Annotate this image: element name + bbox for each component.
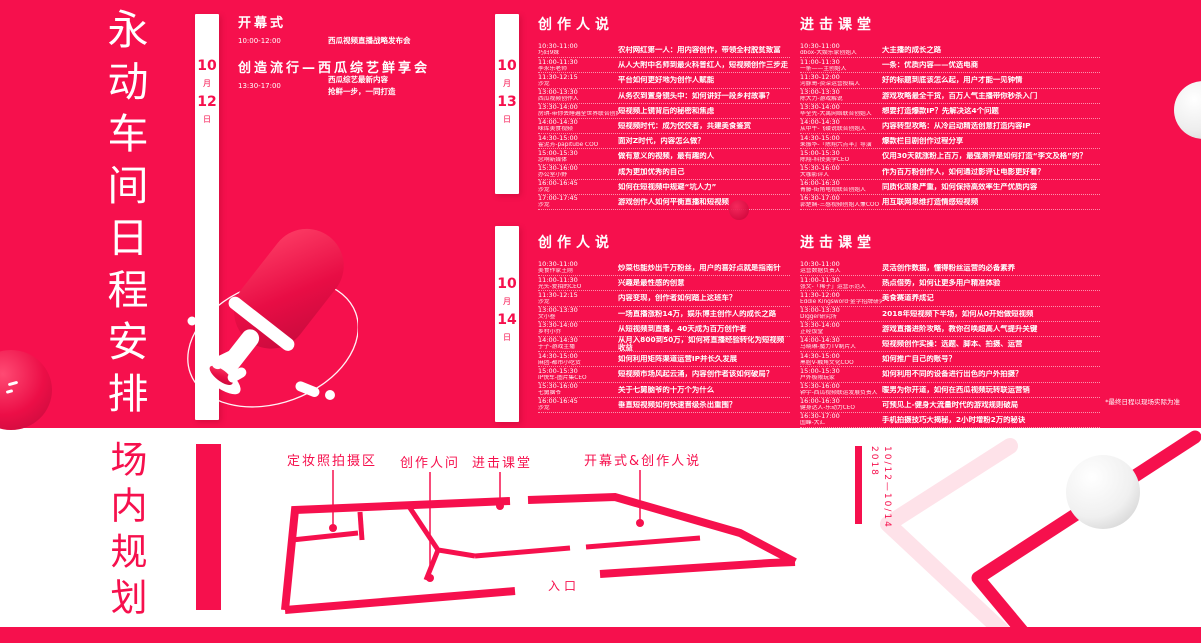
session-topic: 游戏创作人如何平衡直播和短视频 [618, 198, 790, 206]
red-divider-bar [196, 444, 221, 610]
session-topic: 做有意义的视频，最有趣的人 [618, 152, 790, 160]
session-time: 13:00-13:30 [538, 89, 618, 96]
session-time: 15:00-15:30 [800, 150, 882, 157]
session-topic: 短视频市场风起云涌，内容创作者该如何破局？ [618, 370, 790, 378]
session-row: 15:00-15:30 陈翔-科技美学CEO 仅用30天就涨粉上百万，最强测评是… [800, 149, 1100, 164]
session-speaker: 李永乐老师 [538, 66, 618, 72]
oct13-creators-column: 创作人说 10:30-11:00 巧妇9妹 农村网红第一人：用内容创作，带领全村… [538, 14, 790, 210]
session-list: 10:30-11:00 巧妇9妹 农村网红第一人：用内容创作，带领全村脱贫致富 … [538, 43, 790, 210]
session-topic: 内容转型攻略：从冷启动精选创意打造内容IP [882, 122, 1100, 130]
session-time: 14:30-15:00 [800, 135, 882, 142]
session-time: 14:00-14:30 [538, 337, 618, 344]
session-row: 16:30-17:00 郭楚娴-三感视频创始人兼COO 用互联网思维打造情感短视… [800, 195, 1100, 210]
plan-label-opening-area: 开幕式&创作人说 [584, 450, 701, 469]
session-speaker: 西瓜视频创作人 [538, 96, 618, 102]
session-speaker: 一条——主创始人 [800, 66, 882, 72]
session-row: 13:00-13:30 Digger研究所 2018年短视频下半场，如何从0开始… [800, 307, 1100, 322]
session-time: 15:30-16:00 [800, 165, 882, 172]
session-row: 16:00-16:45 沙龙 如何在短视频中规避“坑人力” [538, 180, 790, 195]
session-speaker: 健身达人-乐动力CEO [800, 405, 882, 411]
column-header: 创作人说 [538, 232, 790, 252]
session-time: 11:00-11:30 [538, 59, 618, 66]
session-row: 10:30-11:00 dbox-大娱乐家创始人 大主播的成长之路 [800, 43, 1100, 58]
session-row: 11:30-12:00 河豚哥-资深运营投稿人 好的标题到底该怎么起，用户才能一… [800, 73, 1100, 88]
session-topic: 关于七舅脑爷的十万个为什么 [618, 386, 790, 394]
session-topic: 大主播的成长之路 [882, 46, 1100, 54]
session-speaker: 沙龙 [538, 202, 618, 208]
ball-highlight [6, 389, 14, 394]
session-topic: 从人大附中名师到最火科普红人，短视频创作三步走 [618, 61, 790, 69]
session-time: 16:00-16:45 [538, 180, 618, 187]
session-row: 11:30-12:15 沙龙 内容变现，创作者如何踏上这班车？ [538, 291, 790, 306]
session-row: 14:00-14:30 味库美食视频 短视频时代：成为佼佼者，共建美食鉴赏 [538, 119, 790, 134]
session-speaker: 沙龙 [538, 187, 618, 193]
date-day-label: 日 [503, 115, 511, 125]
session-row: 15:30-16:00 办公室小野 成为更加优秀的自己 [538, 165, 790, 180]
date-month-label: 月 [503, 79, 511, 89]
date-bar-oct13: 10 月 13 日 [495, 14, 519, 194]
session-topic: 作为百万粉创作人，如何通过影评让电影更好看？ [882, 168, 1100, 176]
session-time: 13:30-14:00 [800, 322, 882, 329]
session-row: 15:30-16:00 七舅脑爷 关于七舅脑爷的十万个为什么 [538, 383, 790, 398]
session-speaker: 户外极限玩家 [800, 375, 882, 381]
variety-desc-line1: 西瓜综艺最新内容 [328, 74, 388, 85]
session-topic: 好的标题到底该怎么起，用户才能一见钟情 [882, 76, 1100, 84]
date-month: 10 [497, 58, 516, 74]
session-row: 13:30-14:00 毕全先-大禹网络联合创始人 想要打造爆款IP？先解决这4… [800, 104, 1100, 119]
date-day: 12 [197, 94, 216, 110]
oct14-creators-column: 创作人说 10:30-11:00 美食作家王刚 炒菜也能炒出千万粉丝，用户的喜好… [538, 232, 790, 413]
session-time: 14:30-15:00 [538, 135, 618, 142]
session-row: 13:00-13:30 西瓜视频创作人 从务农到置身镜头中：如何讲好一段乡村故事… [538, 89, 790, 104]
red-ball-decoration-middle [729, 200, 749, 220]
session-topic: 想要打造爆款IP？先解决这4个问题 [882, 107, 1100, 115]
session-topic: 从月入800到50万，如何将直播经验转化为短视频收益 [618, 336, 790, 352]
session-speaker: 钟宇-西瓜视频联运发展负责人 [800, 390, 882, 396]
opening-desc: 西瓜视频直播战略发布会 [328, 35, 411, 46]
session-topic: 炒菜也能炒出千万粉丝，用户的喜好点就是指南针 [618, 264, 790, 272]
session-topic: 短视频时代：成为佼佼者，共建美食鉴赏 [618, 122, 790, 130]
session-speaker: 于子-游戏主播 [538, 344, 618, 350]
date-day-label: 日 [503, 333, 511, 343]
session-speaker: 郭楚娴-三感视频创始人兼COO [800, 202, 882, 208]
session-row: 13:30-14:00 房琪-带你去睡遍全世界联合创始人 短视频上镜背后的秘密和… [538, 104, 790, 119]
session-time: 16:00-16:45 [538, 398, 618, 405]
session-row: 10:30-11:00 美食作家王刚 炒菜也能炒出千万粉丝，用户的喜好点就是指南… [538, 261, 790, 276]
footnote: *最终日程以现场实际为准 [1050, 396, 1180, 406]
session-row: 13:00-13:30 陈大力-游戏解说 游戏攻略最全干货，百万人气主播带你秒杀… [800, 89, 1100, 104]
column-header: 进击课堂 [800, 14, 1100, 34]
floor-plan [270, 440, 870, 635]
session-time: 15:30-16:00 [538, 383, 618, 390]
session-topic: 一条：优质内容——优选电商 [882, 61, 1100, 69]
session-topic: 爆款栏目剧创作过程分享 [882, 137, 1100, 145]
session-speaker: 大咖影评人 [800, 172, 882, 178]
poster-title: 永动车间日程安排 [94, 8, 154, 428]
session-row: 15:00-15:30 念响新媒体 做有意义的视频，最有趣的人 [538, 149, 790, 164]
session-time: 13:00-13:30 [800, 89, 882, 96]
session-time: 13:30-14:00 [538, 322, 618, 329]
session-time: 11:00-11:30 [800, 59, 882, 66]
session-topic: 垂直短视频如何快速晋级杀出重围？ [618, 401, 790, 409]
session-speaker: 马晓琳-魔力TV制片人 [800, 344, 882, 350]
session-time: 11:30-12:00 [800, 292, 882, 299]
session-row: 15:00-15:30 户外极限玩家 如何利用不同的设备进行出色的户外拍摄？ [800, 367, 1100, 382]
session-speaker: 办公室小野 [538, 172, 618, 178]
session-time: 11:30-12:00 [800, 74, 882, 81]
session-topic: 仅用30天就涨粉上百万，最强测评是如何打造“李文及格”的？ [882, 152, 1100, 160]
venue-title: 场内规划 [98, 440, 152, 635]
session-speaker: 运营数据负责人 [800, 268, 882, 274]
session-speaker: 张文-「稀子」运营示范人 [800, 284, 882, 290]
variety-desc-line2: 抢鲜一步，一同打造 [328, 86, 396, 97]
session-time: 14:00-14:30 [800, 337, 882, 344]
session-speaker: 国峰-大汇 [800, 420, 882, 426]
session-row: 14:30-15:00 麻团-都市小吃货 如何利用矩阵渠道运营IP并长久发展 [538, 352, 790, 367]
session-speaker: 文小叁 [538, 314, 618, 320]
session-time: 13:30-14:00 [800, 104, 882, 111]
session-row: 13:30-14:00 乡村小乔 从短视频到直播，40天成为百万创作者 [538, 322, 790, 337]
session-topic: 用互联网思维打造情感短视频 [882, 198, 1100, 206]
session-topic: 2018年短视频下半场，如何从0开始做短视频 [882, 310, 1100, 318]
session-speaker: 七舅脑爷 [538, 390, 618, 396]
session-speaker: 沙龙 [538, 299, 618, 305]
session-speaker: 乡村小乔 [538, 329, 618, 335]
session-time: 14:30-15:00 [800, 353, 882, 360]
session-topic: 一场直播涨粉14万，娱乐博主创作人的成长之路 [618, 310, 790, 318]
session-time: 13:30-14:00 [538, 104, 618, 111]
session-speaker: 麻团-都市小吃货 [538, 360, 618, 366]
session-time: 16:30-17:00 [800, 413, 882, 420]
session-speaker: Eddie Kingsword·金字招牌研究室 [800, 299, 882, 305]
event-schedule-poster: 永动车间日程安排 10 月 12 日 开幕式 10:00-12:00 西瓜视频直… [0, 0, 1201, 643]
session-time: 15:30-16:00 [538, 165, 618, 172]
session-speaker: 霍泥芳-papitube COO [538, 142, 618, 148]
ball-highlight [8, 381, 18, 386]
session-speaker: 沙龙 [538, 81, 618, 87]
session-time: 10:30-11:00 [800, 261, 882, 268]
session-row: 11:30-12:15 沙龙 平台如何更好地为创作人赋能 [538, 73, 790, 88]
session-speaker: 光头-爱拍的CEO [538, 284, 618, 290]
session-time: 15:00-15:30 [538, 368, 618, 375]
session-time: 16:00-16:30 [800, 398, 882, 405]
session-row: 13:30-14:00 正经饭堂 游戏直播进阶攻略，教你召唤超高人气提升关键 [800, 322, 1100, 337]
microphone-3d-icon [183, 218, 358, 430]
session-topic: 面对Z时代，内容怎么做？ [618, 137, 790, 145]
session-speaker: dbox-大娱乐家创始人 [800, 50, 882, 56]
session-row: 11:00-11:30 一条——主创始人 一条：优质内容——优选电商 [800, 58, 1100, 73]
date-month-label: 月 [503, 297, 511, 307]
session-speaker: Digger研究所 [800, 314, 882, 320]
session-speaker: 房琪-带你去睡遍全世界联合创始人 [538, 111, 618, 117]
session-speaker: 毕全先-大禹网络联合创始人 [800, 111, 882, 117]
session-speaker: 陈翔-科技美学CEO [800, 157, 882, 163]
date-month: 10 [197, 58, 216, 74]
session-time: 11:30-12:15 [538, 292, 618, 299]
session-speaker: 美食作家王刚 [538, 268, 618, 274]
session-time: 14:00-14:30 [538, 119, 618, 126]
session-row: 14:00-14:30 从中午-飞碟说联合创始人 内容转型攻略：从冷启动精选创意… [800, 119, 1100, 134]
session-row: 16:30-17:00 国峰-大汇 手机拍摄技巧大揭秘，2小时增粉2万的秘诀 [800, 413, 1100, 428]
session-topic: 如何利用矩阵渠道运营IP并长久发展 [618, 355, 790, 363]
session-row: 16:00-16:30 青藤-街角电视联合创始人 同质化现象严重，如何保持高效率… [800, 180, 1100, 195]
session-topic: 暖男为你开道，如何在西瓜视频玩转联运营销 [882, 386, 1100, 394]
session-time: 13:00-13:30 [800, 307, 882, 314]
session-speaker: 念响新媒体 [538, 157, 618, 163]
session-topic: 平台如何更好地为创作人赋能 [618, 76, 790, 84]
session-topic: 灵活创作数据，懂得粉丝运营的必备素养 [882, 264, 1100, 272]
session-row: 10:30-11:00 运营数据负责人 灵活创作数据，懂得粉丝运营的必备素养 [800, 261, 1100, 276]
date-day: 14 [497, 312, 516, 328]
session-time: 13:00-13:30 [538, 307, 618, 314]
session-topic: 兴趣是最性感的创意 [618, 279, 790, 287]
session-topic: 同质化现象严重，如何保持高效率生产优质内容 [882, 183, 1100, 191]
date-bar-oct14: 10 月 14 日 [495, 226, 519, 422]
session-speaker: 黑脸V-触角文化COO [800, 360, 882, 366]
session-topic: 如何推广自己的账号？ [882, 355, 1100, 363]
session-topic: 短视频创作实操：选题、脚本、拍摄、运营 [882, 340, 1100, 348]
session-row: 14:00-14:30 于子-游戏主播 从月入800到50万，如何将直播经验转化… [538, 337, 790, 352]
session-row: 11:00-11:30 张文-「稀子」运营示范人 热点借势，如何让更多用户精准体… [800, 276, 1100, 291]
session-time: 11:30-12:15 [538, 74, 618, 81]
session-topic: 短视频上镜背后的秘密和焦虑 [618, 107, 790, 115]
session-topic: 农村网红第一人：用内容创作，带领全村脱贫致富 [618, 46, 790, 54]
track-and-ball-decoration [850, 430, 1201, 643]
session-time: 10:30-11:00 [538, 261, 618, 268]
entrance-label: 入口 [548, 577, 580, 594]
session-topic: 热点借势，如何让更多用户精准体验 [882, 279, 1100, 287]
session-time: 11:00-11:30 [538, 277, 618, 284]
plan-label-creator-ask: 创作人问 [400, 452, 460, 471]
session-topic: 游戏攻略最全干货，百万人气主播带你秒杀入门 [882, 92, 1100, 100]
session-speaker: IP快车-图片集CEO [538, 375, 618, 381]
column-header: 创作人说 [538, 14, 790, 34]
session-speaker: 河豚哥-资深运营投稿人 [800, 81, 882, 87]
session-row: 13:00-13:30 文小叁 一场直播涨粉14万，娱乐博主创作人的成长之路 [538, 307, 790, 322]
oct13-classroom-column: 进击课堂 10:30-11:00 dbox-大娱乐家创始人 大主播的成长之路 1… [800, 14, 1100, 210]
variety-time: 13:30-17:00 [238, 82, 281, 90]
session-speaker: 巧妇9妹 [538, 50, 618, 56]
session-time: 10:30-11:00 [538, 43, 618, 50]
session-row: 14:30-15:00 朱振华-『陈翔六点半』导演 爆款栏目剧创作过程分享 [800, 134, 1100, 149]
session-time: 17:00-17:45 [538, 195, 618, 202]
opening-title: 开幕式 [238, 12, 286, 31]
session-row: 10:30-11:00 巧妇9妹 农村网红第一人：用内容创作，带领全村脱贫致富 [538, 43, 790, 58]
session-topic: 从务农到置身镜头中：如何讲好一段乡村故事？ [618, 92, 790, 100]
session-list: 10:30-11:00 dbox-大娱乐家创始人 大主播的成长之路 11:00-… [800, 43, 1100, 210]
plan-label-classroom: 进击课堂 [472, 452, 532, 471]
plan-label-photo-area: 定妆照拍摄区 [287, 450, 377, 469]
session-row: 15:30-16:00 大咖影评人 作为百万粉创作人，如何通过影评让电影更好看？ [800, 165, 1100, 180]
session-speaker: 朱振华-『陈翔六点半』导演 [800, 142, 882, 148]
session-time: 15:30-16:00 [800, 383, 882, 390]
session-row: 11:30-12:00 Eddie Kingsword·金字招牌研究室 美食赛道… [800, 291, 1100, 306]
session-time: 10:30-11:00 [800, 43, 882, 50]
session-row: 11:00-11:30 李永乐老师 从人大附中名师到最火科普红人，短视频创作三步… [538, 58, 790, 73]
opening-time: 10:00-12:00 [238, 37, 281, 45]
session-row: 15:00-15:30 IP快车-图片集CEO 短视频市场风起云涌，内容创作者该… [538, 367, 790, 382]
date-day: 13 [497, 94, 516, 110]
footer-strip [0, 627, 1201, 643]
session-speaker: 正经饭堂 [800, 329, 882, 335]
date-day-label: 日 [203, 115, 211, 125]
date-month-label: 月 [203, 79, 211, 89]
session-topic: 内容变现，创作者如何踏上这班车？ [618, 294, 790, 302]
session-topic: 如何在短视频中规避“坑人力” [618, 183, 790, 191]
session-topic: 如何利用不同的设备进行出色的户外拍摄？ [882, 370, 1100, 378]
session-list: 10:30-11:00 美食作家王刚 炒菜也能炒出千万粉丝，用户的喜好点就是指南… [538, 261, 790, 413]
date-month: 10 [497, 276, 516, 292]
column-header: 进击课堂 [800, 232, 1100, 252]
session-row: 14:00-14:30 马晓琳-魔力TV制片人 短视频创作实操：选题、脚本、拍摄… [800, 337, 1100, 352]
session-row: 14:30-15:00 霍泥芳-papitube COO 面对Z时代，内容怎么做… [538, 134, 790, 149]
session-speaker: 青藤-街角电视联合创始人 [800, 187, 882, 193]
session-row: 14:30-15:00 黑脸V-触角文化COO 如何推广自己的账号？ [800, 352, 1100, 367]
session-time: 11:00-11:30 [800, 277, 882, 284]
session-speaker: 从中午-飞碟说联合创始人 [800, 126, 882, 132]
session-topic: 游戏直播进阶攻略，教你召唤超高人气提升关键 [882, 325, 1100, 333]
session-time: 16:30-17:00 [800, 195, 882, 202]
session-topic: 成为更加优秀的自己 [618, 168, 790, 176]
session-speaker: 陈大力-游戏解说 [800, 96, 882, 102]
session-row: 11:00-11:30 光头-爱拍的CEO 兴趣是最性感的创意 [538, 276, 790, 291]
session-topic: 从短视频到直播，40天成为百万创作者 [618, 325, 790, 333]
session-row: 17:00-17:45 沙龙 游戏创作人如何平衡直播和短视频 [538, 195, 790, 210]
session-row: 16:00-16:45 沙龙 垂直短视频如何快速晋级杀出重围？ [538, 398, 790, 413]
session-time: 15:00-15:30 [538, 150, 618, 157]
session-topic: 美食赛道养成记 [882, 294, 1100, 302]
session-speaker: 味库美食视频 [538, 126, 618, 132]
session-time: 14:00-14:30 [800, 119, 882, 126]
session-speaker: 沙龙 [538, 405, 618, 411]
session-time: 14:30-15:00 [538, 353, 618, 360]
session-topic: 手机拍摄技巧大揭秘，2小时增粉2万的秘诀 [882, 416, 1100, 424]
session-time: 16:00-16:30 [800, 180, 882, 187]
session-time: 15:00-15:30 [800, 368, 882, 375]
